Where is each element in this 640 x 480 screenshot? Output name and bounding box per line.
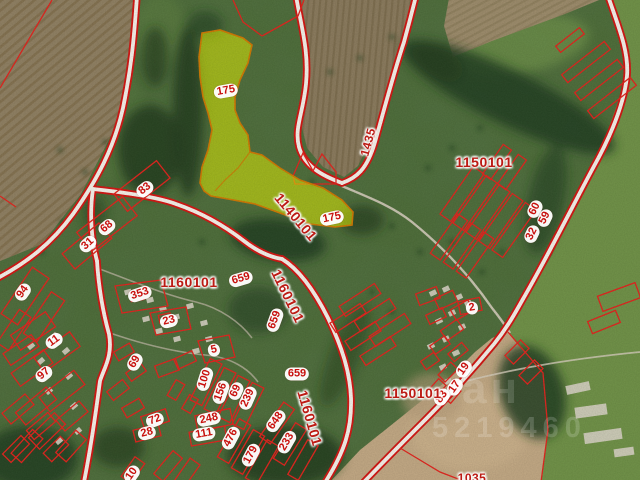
parcel-number-pill[interactable]: 659 xyxy=(285,368,309,381)
cadastral-map[interactable]: 1751758368319435323511976910015669239248… xyxy=(0,0,640,480)
